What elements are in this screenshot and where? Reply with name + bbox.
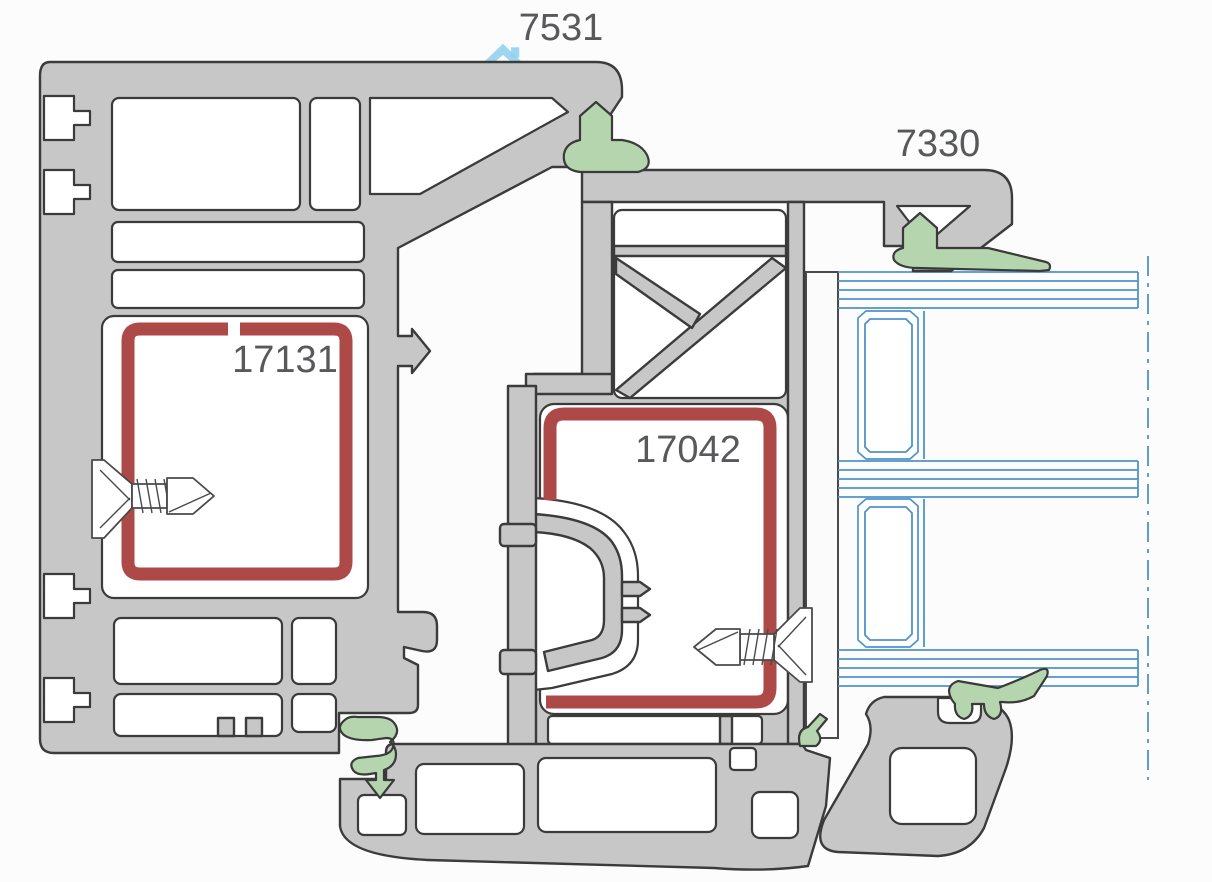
diagram-canvas: 7531 7330 17131 17042 [0,0,1212,882]
cross-section-drawing: 7531 7330 17131 17042 [0,0,1212,882]
glazing-spacer [858,499,924,647]
glazing-spacer [858,311,924,459]
label-sash-profile: 7330 [896,123,981,165]
glazing-bead [820,697,1012,856]
label-frame-reinforcement: 17131 [232,339,338,381]
label-frame-profile: 7531 [519,7,604,49]
label-sash-reinforcement: 17042 [635,429,741,471]
